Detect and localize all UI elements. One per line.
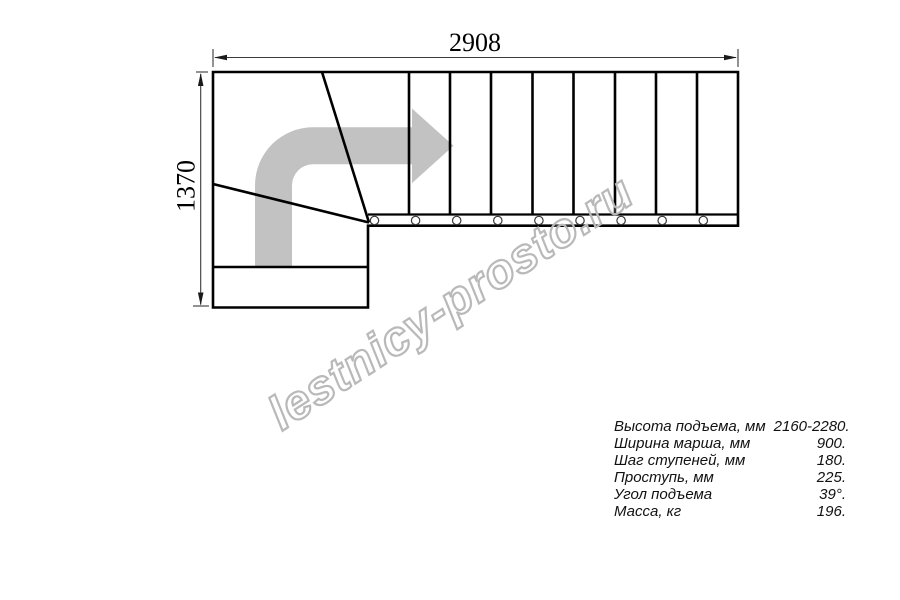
dimension-arrow-left-icon xyxy=(214,55,227,61)
spec-row: Шаг ступеней, мм 180. xyxy=(614,452,846,469)
spec-value: 196. xyxy=(809,503,846,520)
spec-label: Высота подъема, мм xyxy=(614,418,766,435)
bolt-icon xyxy=(658,216,666,224)
width-dimension-label: 2908 xyxy=(449,28,501,57)
dimension-arrow-down-icon xyxy=(198,293,204,306)
spec-label: Шаг ступеней, мм xyxy=(614,452,745,469)
staircase-drawing-page: 2908 1370 lestnicy-prosto.ru Высота подъ… xyxy=(0,0,900,600)
spec-value: 39°. xyxy=(811,486,846,503)
width-dimension: 2908 xyxy=(213,28,738,67)
spec-table: Высота подъема, мм 2160-2280. Ширина мар… xyxy=(614,418,846,520)
bolt-icon xyxy=(370,216,378,224)
spec-value: 2160-2280. xyxy=(766,418,850,435)
spec-label: Масса, кг xyxy=(614,503,681,520)
spec-label: Ширина марша, мм xyxy=(614,435,750,452)
spec-label: Угол подъема xyxy=(614,486,712,503)
spec-label: Проступь, мм xyxy=(614,469,714,486)
spec-row: Проступь, мм 225. xyxy=(614,469,846,486)
spec-row: Масса, кг 196. xyxy=(614,503,846,520)
direction-arrow xyxy=(255,109,454,268)
spec-row: Высота подъема, мм 2160-2280. xyxy=(614,418,846,435)
direction-arrow-shape xyxy=(255,109,454,268)
height-dimension: 1370 xyxy=(172,72,210,306)
dimension-arrow-right-icon xyxy=(724,55,737,61)
spec-value: 225. xyxy=(809,469,846,486)
bolt-icon xyxy=(411,216,419,224)
bolt-icon xyxy=(699,216,707,224)
dimension-arrow-up-icon xyxy=(198,73,204,86)
bolt-icon xyxy=(494,216,502,224)
bolt-icon xyxy=(453,216,461,224)
spec-row: Угол подъема 39°. xyxy=(614,486,846,503)
tread-lines xyxy=(409,72,697,215)
height-dimension-label: 1370 xyxy=(172,160,201,212)
spec-value: 900. xyxy=(809,435,846,452)
spec-value: 180. xyxy=(809,452,846,469)
spec-row: Ширина марша, мм 900. xyxy=(614,435,846,452)
